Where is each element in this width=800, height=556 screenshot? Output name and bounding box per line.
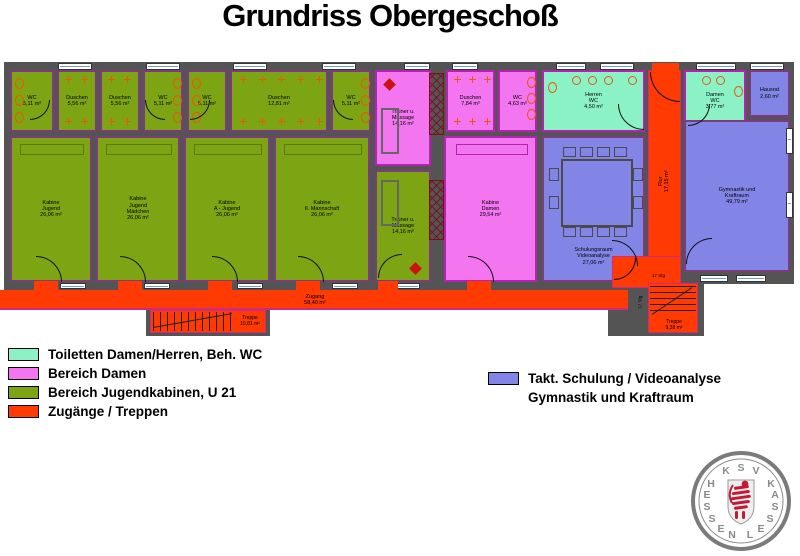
window <box>404 63 430 70</box>
shower-icon <box>454 118 461 125</box>
shower-icon <box>316 118 323 125</box>
window <box>144 283 170 289</box>
legend-label: Bereich Damen <box>48 366 146 381</box>
window <box>696 63 736 70</box>
door-marker <box>467 281 491 290</box>
shower-icon <box>469 76 476 83</box>
legend-swatch-orange <box>8 405 39 418</box>
room-trainer-massage-1: Trainer u. Massage 14,16 m² <box>375 70 431 166</box>
table-icon <box>409 262 422 275</box>
locker-icon <box>429 180 444 240</box>
chair-icon <box>549 168 559 181</box>
shower-icon <box>316 76 323 83</box>
urinal-icon <box>628 76 637 85</box>
urinal-icon <box>572 76 581 85</box>
toilet-icon <box>192 78 201 89</box>
logo-letter: N <box>728 529 736 541</box>
toilet-icon <box>173 112 182 123</box>
legend-label: Toiletten Damen/Herren, Beh. WC <box>48 347 262 362</box>
shower-icon <box>124 118 131 125</box>
staircase-right: Treppe 9,38 m² <box>648 283 698 333</box>
chair-icon <box>563 227 576 237</box>
toilet-icon <box>173 78 182 89</box>
toilet-icon <box>734 86 743 97</box>
shower-icon <box>297 76 304 83</box>
shower-icon <box>278 118 285 125</box>
urinal-icon <box>716 76 725 85</box>
chair-icon <box>580 227 593 237</box>
toilet-icon <box>361 112 370 123</box>
stair-steps-note: 17 Stg <box>652 274 665 279</box>
logo-letter: S <box>771 501 778 513</box>
window <box>700 275 728 282</box>
room-label: Kabine II. Mannschaft 26,06 m² <box>305 200 340 219</box>
shower-icon <box>124 76 131 83</box>
page-title: Grundriss Obergeschoß <box>0 0 780 34</box>
room-wc-damen: WC 4,63 m² <box>498 70 537 132</box>
room-label: Hausrat 2,60 m² <box>760 87 779 100</box>
room-duschen-1: Duschen 5,56 m² <box>57 70 97 132</box>
logo-letter: K <box>722 465 730 477</box>
shower-icon <box>454 76 461 83</box>
logo-letter: S <box>708 513 715 525</box>
legend-swatch-pink <box>8 367 39 380</box>
window <box>452 63 478 70</box>
door-marker <box>34 281 58 290</box>
shower-icon <box>108 76 115 83</box>
massage-table-icon <box>381 180 399 226</box>
chair-icon <box>597 147 610 157</box>
conference-table <box>561 159 633 227</box>
chair-icon <box>614 147 627 157</box>
logo-letter: A <box>771 489 779 501</box>
club-logo: K S V H E S S E N K A S S E L <box>686 448 796 554</box>
toilet-icon <box>527 77 536 88</box>
window <box>322 63 356 70</box>
window <box>146 63 180 70</box>
page: Grundriss Obergeschoß WC 5,11 m² Duschen… <box>0 0 800 556</box>
shower-icon <box>259 118 266 125</box>
room-label: Gymnastik und Kraftraum 49,79 m² <box>719 187 756 206</box>
legend-item-gymnastik: Gymnastik und Kraftraum <box>528 390 694 405</box>
room-label: Kabine Jugend 26,06 m² <box>40 200 62 219</box>
room-label: Duschen 5,56 m² <box>66 95 88 108</box>
room-label: Kabine A - Jugend 26,06 m² <box>214 200 240 219</box>
shower-icon <box>81 118 88 125</box>
room-duschen-2: Duschen 5,56 m² <box>100 70 140 132</box>
chair-icon <box>614 227 627 237</box>
toilet-icon <box>15 95 24 106</box>
door-marker <box>208 281 232 290</box>
room-hausrat: Hausrat 2,60 m² <box>749 70 790 117</box>
legend-swatch-blue <box>488 372 519 385</box>
room-label: Duschen 5,56 m² <box>109 95 131 108</box>
chair-icon <box>563 147 576 157</box>
bench-icon <box>456 144 528 155</box>
chair-icon <box>633 168 643 181</box>
room-kabine-ii-mannschaft: Kabine II. Mannschaft 26,06 m² <box>274 136 370 282</box>
stair-steps-note: 17 Stg <box>638 296 643 309</box>
shower-icon <box>240 76 247 83</box>
shower-icon <box>297 118 304 125</box>
shower-icon <box>81 76 88 83</box>
toilet-icon <box>173 95 182 106</box>
logo-letter: S <box>766 513 773 525</box>
room-kabine-damen: Kabine Damen 29,54 m² <box>444 136 537 282</box>
window <box>600 63 634 70</box>
legend-item-schulung: Takt. Schulung / Videoanalyse <box>488 371 721 386</box>
logo-letter: E <box>717 523 724 535</box>
legend-label: Zugänge / Treppen <box>48 404 168 419</box>
legend-label: Bereich Jugendkabinen, U 21 <box>48 385 236 400</box>
room-label: WC 4,63 m² <box>508 95 527 108</box>
corridor-label: Zugang 58,40 m² <box>285 294 345 307</box>
shower-icon <box>278 76 285 83</box>
logo-letter: E <box>703 489 710 501</box>
locker-icon <box>429 73 444 135</box>
logo-letter: L <box>747 529 754 541</box>
massage-table-icon <box>381 108 399 154</box>
room-duschen-damen: Duschen 7,84 m² <box>446 70 495 132</box>
urinal-icon <box>604 76 613 85</box>
legend-label: Gymnastik und Kraftraum <box>528 390 694 405</box>
toilet-icon <box>15 78 24 89</box>
chair-icon <box>580 147 593 157</box>
logo-letter: E <box>757 523 764 535</box>
shower-icon <box>65 76 72 83</box>
toilet-icon <box>527 93 536 104</box>
chair-icon <box>549 196 559 209</box>
stair-label: Treppe 9,38 m² <box>659 320 689 332</box>
legend-swatch-green <box>8 386 39 399</box>
urinal-icon <box>588 76 597 85</box>
toilet-icon <box>548 82 557 93</box>
window <box>786 128 793 154</box>
bench-icon <box>20 144 84 155</box>
toilet-icon <box>527 109 536 120</box>
door-marker <box>652 63 679 71</box>
toilet-icon <box>361 78 370 89</box>
window <box>556 63 586 70</box>
door-marker <box>118 281 142 290</box>
door-marker <box>296 281 320 290</box>
bench-icon <box>284 144 362 155</box>
toilet-icon <box>361 95 370 106</box>
legend-item-toiletten: Toiletten Damen/Herren, Beh. WC <box>8 347 262 362</box>
window <box>750 63 784 70</box>
legend-label: Takt. Schulung / Videoanalyse <box>528 371 721 386</box>
room-label: Kabine Jugend Mädchen 26,06 m² <box>127 196 150 221</box>
window <box>60 283 86 289</box>
urinal-icon <box>702 76 711 85</box>
window <box>233 63 267 70</box>
window <box>736 275 766 282</box>
logo-letter: V <box>752 465 759 477</box>
shower-icon <box>65 118 72 125</box>
window <box>332 283 358 289</box>
door-marker <box>378 281 398 290</box>
logo-letter: S <box>703 501 710 513</box>
bench-icon <box>194 144 262 155</box>
logo-letter: S <box>737 462 744 474</box>
room-kabine-jugend-maedchen: Kabine Jugend Mädchen 26,06 m² <box>96 136 180 282</box>
shower-icon <box>259 76 266 83</box>
shower-icon <box>469 118 476 125</box>
legend-swatch-teal <box>8 348 39 361</box>
window <box>786 192 793 218</box>
stair-label: Treppe 10,81 m² <box>235 316 265 328</box>
room-label: Herren WC 4,50 m² <box>584 92 603 111</box>
room-label: Duschen 7,84 m² <box>460 95 482 108</box>
shower-icon <box>108 118 115 125</box>
corridor-label: Flur 17,15 m² <box>658 166 671 197</box>
staircase-left: Treppe 10,81 m² <box>150 310 266 333</box>
legend-item-damen: Bereich Damen <box>8 366 146 381</box>
room-duschen-3: Duschen 12,81 m² <box>230 70 328 132</box>
shower-icon <box>484 76 491 83</box>
bench-icon <box>106 144 172 155</box>
shower-icon <box>484 118 491 125</box>
toilet-icon <box>15 112 24 123</box>
table-icon <box>383 78 396 91</box>
window <box>58 63 92 70</box>
corridor-zugang: Zugang 58,40 m² <box>0 290 628 310</box>
chair-icon <box>597 227 610 237</box>
window <box>237 283 263 289</box>
room-label: Kabine Damen 29,54 m² <box>480 200 502 219</box>
room-label: Duschen 12,81 m² <box>268 95 290 108</box>
window <box>395 283 420 289</box>
legend-item-zugaenge: Zugänge / Treppen <box>8 404 168 419</box>
shower-icon <box>240 118 247 125</box>
chair-icon <box>633 196 643 209</box>
room-label: Schulungsraum Videoanalyse 27,06 m² <box>574 247 612 280</box>
legend-item-jugend: Bereich Jugendkabinen, U 21 <box>8 385 236 400</box>
